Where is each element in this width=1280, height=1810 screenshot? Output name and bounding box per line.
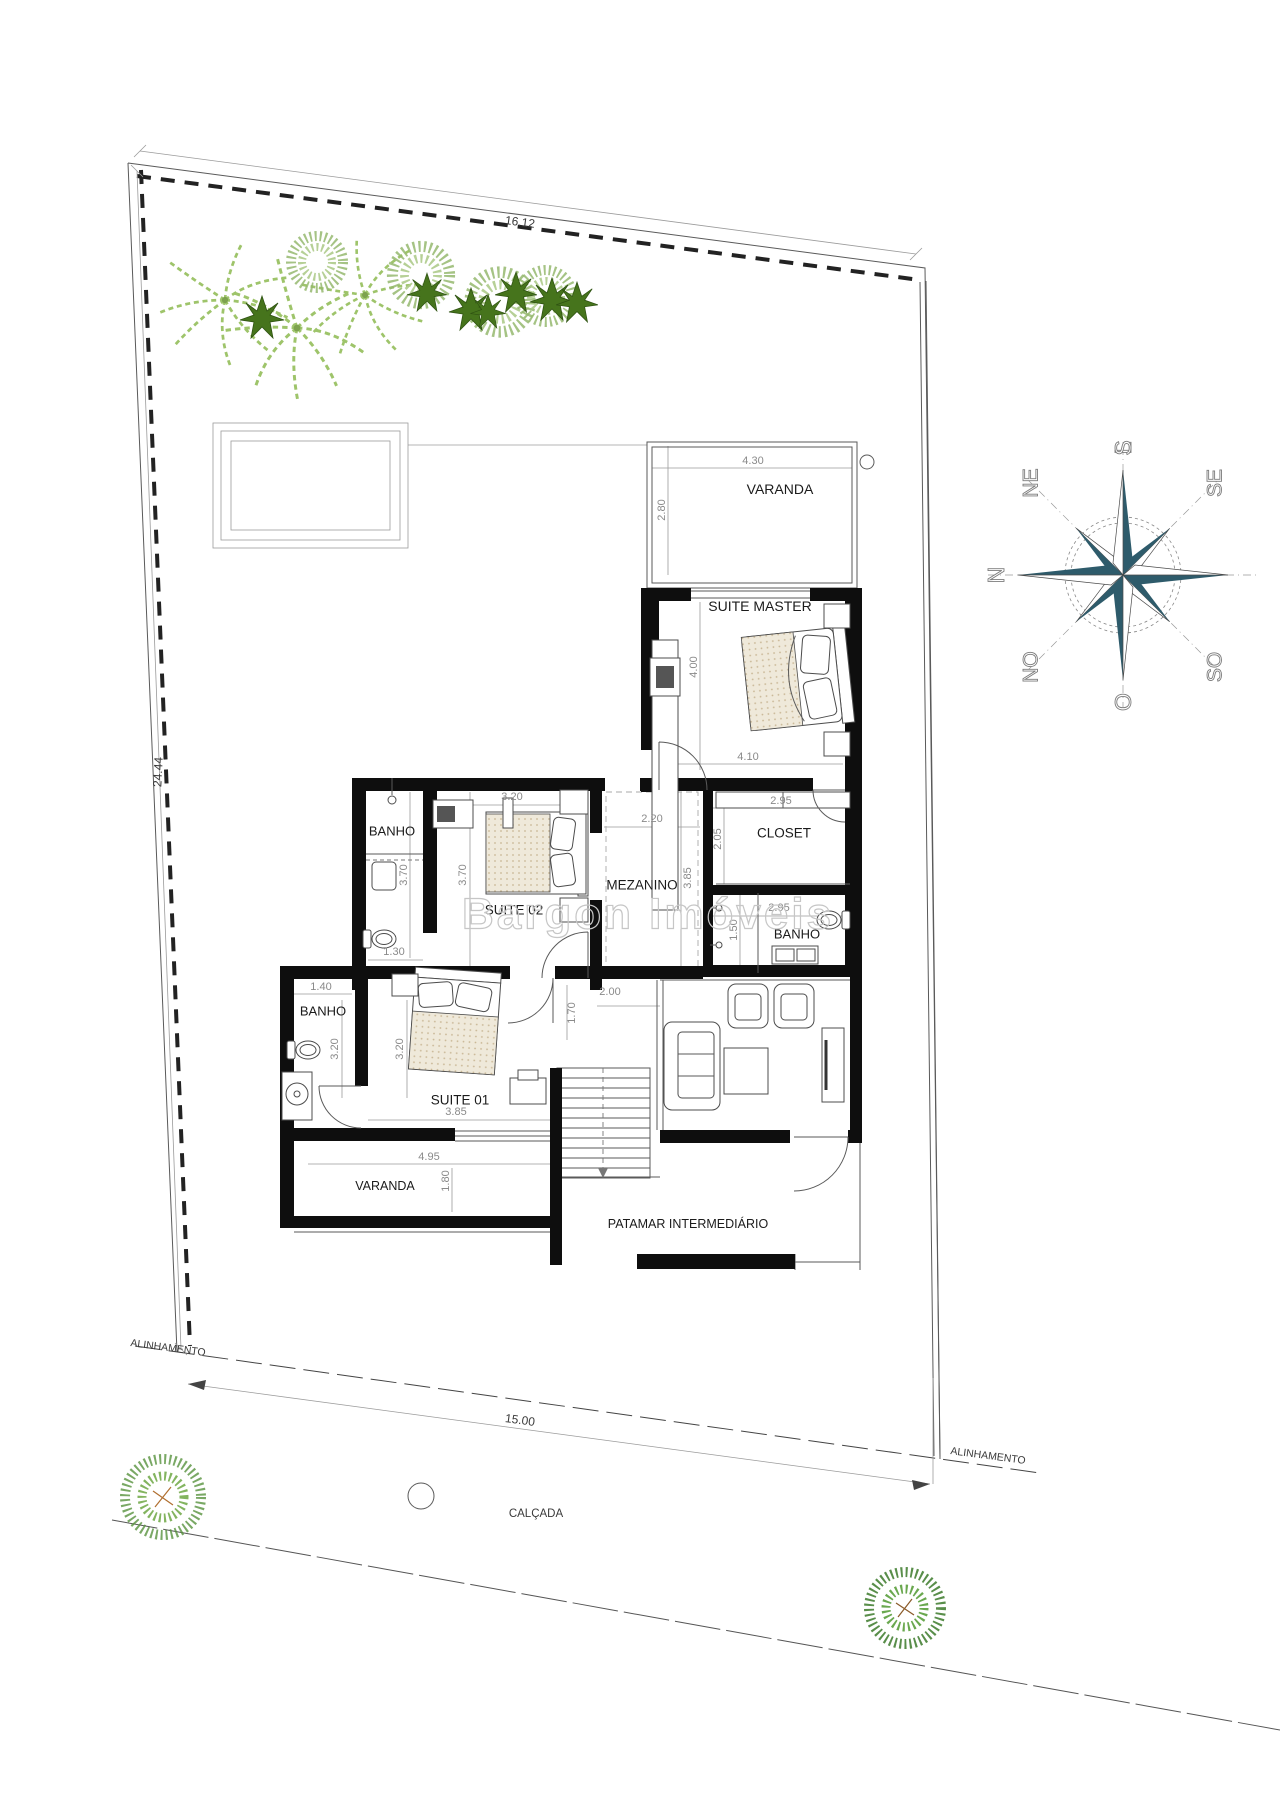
dim-label: 3.85 <box>445 1106 466 1118</box>
dim-label: 4.30 <box>742 455 763 467</box>
dim-label: 2.05 <box>712 828 724 849</box>
dim-label: 2.95 <box>770 795 791 807</box>
compass-point-se: SE <box>1204 469 1227 497</box>
dim-label: 2.20 <box>641 813 662 825</box>
room-label-varanda-bottom: VARANDA <box>355 1179 415 1193</box>
dim-label: 3.20 <box>501 791 522 803</box>
dim-label: 3.85 <box>682 867 694 888</box>
site-dim-side: 24.44 <box>150 756 166 787</box>
dim-label: 2.80 <box>656 499 668 520</box>
wardrobe-unit <box>560 790 588 814</box>
compass-point-n: N <box>983 567 1009 584</box>
street-tree-right <box>869 1572 941 1644</box>
dim-label: 1.80 <box>440 1170 452 1191</box>
dim-label: 3.20 <box>329 1038 341 1059</box>
compass-rose: NNELSESSOONO <box>983 440 1258 711</box>
dim-label: 4.10 <box>737 751 758 763</box>
sidewalk-circle-marker <box>408 1483 434 1509</box>
floorplan-page: .frond{fill:none;stroke:#9ec46a;stroke-w… <box>0 0 1280 1810</box>
dim-label: 1.30 <box>383 946 404 958</box>
dim-label: 1.70 <box>566 1002 578 1023</box>
pool <box>213 423 647 548</box>
dim-label: 4.00 <box>688 656 700 677</box>
street-trees <box>125 1459 941 1644</box>
watermark-text: Bargon Imóveis <box>462 890 834 939</box>
nightstand <box>824 732 850 756</box>
nightstand <box>824 604 850 628</box>
wardrobe-unit <box>392 974 418 996</box>
compass-point-no: NO <box>1020 651 1043 683</box>
dim-label: 3.20 <box>394 1038 406 1059</box>
banho-01-fixtures <box>282 1041 320 1120</box>
dim-label: 4.95 <box>418 1151 439 1163</box>
garden-plants <box>160 219 598 427</box>
compass-point-so: SO <box>1204 652 1227 682</box>
sidewalk <box>112 1483 1280 1730</box>
banho-02-fixtures <box>363 778 423 948</box>
floorplan-drawing: .frond{fill:none;stroke:#9ec46a;stroke-w… <box>0 0 1280 1810</box>
sidewalk-label: CALÇADA <box>509 1508 564 1520</box>
suite-master-tv-cabinet <box>650 640 680 910</box>
suite-master-bed <box>741 623 855 733</box>
suite-01-desk <box>510 1070 546 1104</box>
alignment-label-left: ALINHAMENTO <box>130 1337 207 1359</box>
room-label-banho-02: BANHO <box>369 824 415 839</box>
dim-label: 3.70 <box>457 864 469 885</box>
street-tree-left <box>125 1459 201 1535</box>
compass-point-ne: NE <box>1020 468 1043 497</box>
dim-label: 1.40 <box>310 981 331 993</box>
tv-room-furniture <box>664 984 844 1110</box>
room-label-varanda-top: VARANDA <box>747 481 814 497</box>
alignment-label-right: ALINHAMENTO <box>950 1445 1027 1467</box>
site-dim-top: 16.12 <box>504 213 536 231</box>
dim-label: 3.70 <box>398 864 410 885</box>
compass-point-s: S <box>1110 440 1136 455</box>
suite-02-bed <box>486 810 588 896</box>
stairs <box>557 1068 650 1178</box>
room-label-closet: CLOSET <box>757 826 811 841</box>
site-dim-front: 15.00 <box>504 1411 536 1429</box>
dim-label: 2.00 <box>599 986 620 998</box>
coffee-table <box>724 1048 768 1094</box>
suite-01-bed <box>408 967 501 1075</box>
room-label-banho-01: BANHO <box>300 1004 346 1019</box>
room-label-suite-master: SUITE MASTER <box>708 598 811 614</box>
compass-point-o: O <box>1110 693 1136 711</box>
room-label-patamar: PATAMAR INTERMEDIÁRIO <box>608 1216 769 1231</box>
